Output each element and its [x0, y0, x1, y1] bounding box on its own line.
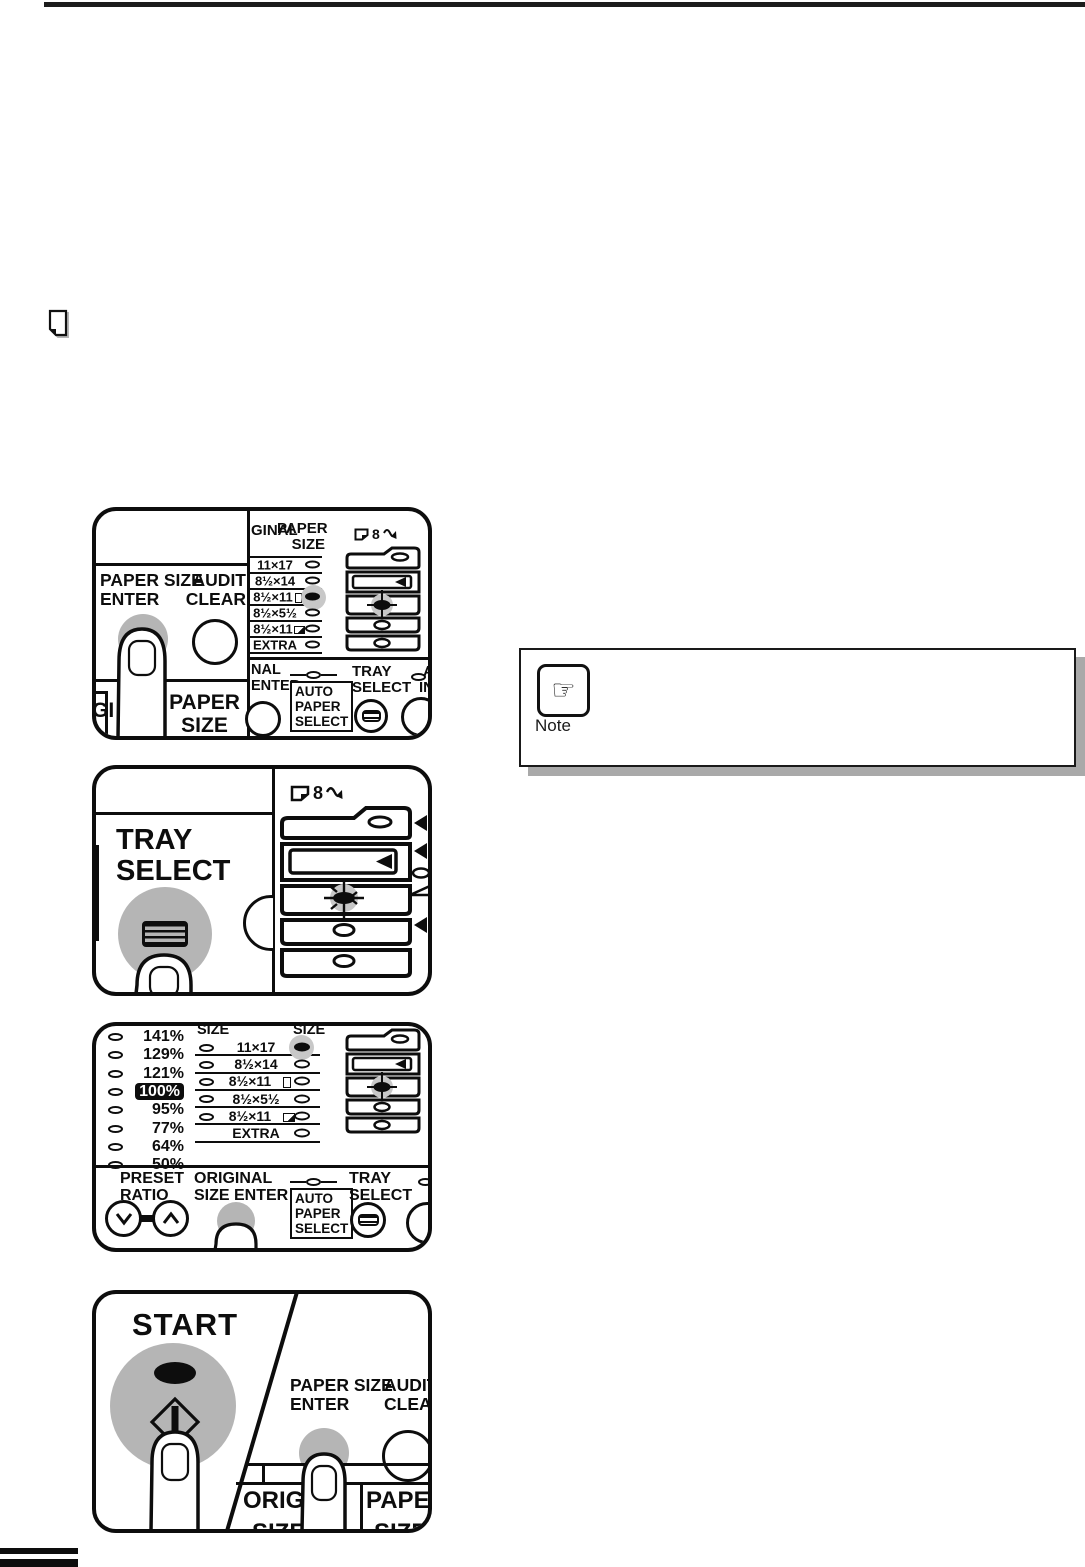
button-partial	[401, 697, 432, 737]
tray-select-label: TRAY SELECT	[116, 825, 230, 888]
panel-tray-select: TRAY SELECT 8	[92, 765, 432, 996]
size-row: 8½×11	[195, 1074, 320, 1091]
divider	[248, 1463, 428, 1466]
original-size-enter-label: ORIGINAL SIZE ENTER	[194, 1170, 288, 1205]
paper-size-enter-label: PAPER SIZE ENTER	[290, 1376, 393, 1414]
size-label: 8½×5½	[217, 1091, 295, 1107]
start-led	[154, 1362, 196, 1384]
cut-label-size: SIZE	[374, 1520, 427, 1533]
led	[108, 1125, 123, 1133]
led	[294, 1111, 310, 1120]
ratio-row: 129%	[108, 1046, 184, 1064]
paper-size-enter-button	[118, 614, 168, 664]
divider	[247, 657, 428, 660]
led	[294, 1077, 310, 1086]
size-label: 8½×11	[247, 590, 299, 605]
misfeed-wave-icon	[383, 528, 397, 541]
button-partial	[243, 895, 273, 951]
footer-mark	[0, 1559, 78, 1567]
size-row: 8½×14	[195, 1056, 320, 1073]
misfeed-wave-icon	[326, 786, 343, 802]
ratio-label: 95%	[132, 1101, 184, 1119]
note-box: ☞ Note	[519, 648, 1076, 767]
size-row: 11×17	[195, 1039, 320, 1056]
paper-size-enter-button	[299, 1428, 349, 1478]
chevron-down-icon	[112, 1206, 136, 1230]
size-row: 11×17	[247, 558, 322, 574]
button-partial-clip	[243, 895, 273, 953]
portrait-page-icon	[283, 1077, 291, 1088]
audit-clear-label: AUDIT CLEAR	[184, 571, 246, 609]
led	[199, 1113, 214, 1121]
selected-ratio-label: 100%	[135, 1083, 184, 1100]
size-label: EXTRA	[247, 638, 303, 653]
size-label: 11×17	[217, 1039, 295, 1055]
divider	[96, 1165, 428, 1168]
panel-original-size-enter: 141% 129% 121% 100% 95% 77% 64% 50% SIZE…	[92, 1022, 432, 1252]
auto-paper-select-led	[306, 671, 321, 679]
size-table: 11×17 8½×14 8½×11 8½×5½	[195, 1039, 320, 1143]
paper-size-list: 11×17 8½×14 8½×11 8½×5½ 8½×11	[247, 556, 322, 654]
landscape-page-icon	[294, 626, 305, 634]
ratio-label: 121%	[132, 1065, 184, 1083]
led	[294, 1129, 310, 1138]
audit-clear-button	[192, 619, 238, 665]
led	[108, 1051, 123, 1059]
size-label: 8½×14	[217, 1056, 295, 1072]
led	[108, 1070, 123, 1078]
size-row: 8½×5½	[247, 606, 322, 622]
auto-paper-select-label: AUTO PAPER SELECT	[290, 1188, 353, 1239]
led-on	[294, 1042, 310, 1051]
ratio-row: 100%	[108, 1083, 184, 1101]
misfeed-number: 8	[372, 526, 380, 542]
size-row: EXTRA	[247, 638, 322, 654]
led	[294, 1094, 310, 1103]
led	[305, 561, 320, 569]
divider	[96, 679, 247, 682]
size-label: EXTRA	[217, 1125, 295, 1141]
led-wire	[321, 1181, 337, 1183]
led-wire	[321, 674, 337, 676]
divider	[360, 1482, 363, 1529]
led	[199, 1078, 214, 1086]
ratio-row: 95%	[108, 1101, 184, 1119]
preset-ratio-label: PRESET RATIO	[120, 1170, 184, 1205]
paper-glyph-icon	[290, 785, 310, 802]
cut-label-paper: PAPER	[366, 1488, 432, 1514]
panel-start: START PAPER SIZE ENTER AUDIT CLEAR ORIGI…	[92, 1290, 432, 1533]
ratio-label: 77%	[132, 1120, 184, 1138]
auto-paper-select-label: AUTO PAPER SELECT	[290, 681, 353, 732]
edge-tick	[96, 845, 99, 941]
cut-label-a: A	[423, 664, 432, 680]
ratio-row: 77%	[108, 1119, 184, 1137]
copier-diagram	[344, 546, 428, 654]
size-label: 8½×14	[247, 574, 303, 589]
auto-paper-select-led	[306, 1178, 321, 1186]
size-label: 8½×11	[213, 1073, 287, 1089]
led	[199, 1061, 214, 1069]
paper-size-column-header: PAPER SIZE	[277, 521, 325, 553]
size-label: 8½×5½	[247, 606, 303, 621]
page-corner-icon	[46, 309, 72, 341]
button-partial	[406, 1202, 432, 1244]
size-label: 8½×11	[213, 1108, 287, 1124]
note-hand-icon: ☞	[537, 664, 590, 717]
led-on	[305, 593, 320, 601]
tray-select-label: TRAY SELECT	[349, 1170, 412, 1205]
led	[305, 625, 320, 633]
footer-mark	[0, 1548, 78, 1554]
led-wire	[290, 674, 306, 676]
ratio-row-selected: 100%	[132, 1083, 184, 1101]
ratio-label: 141%	[132, 1028, 184, 1046]
original-size-column-header: SIZE	[197, 1023, 229, 1039]
led	[108, 1106, 123, 1114]
cut-label-gi: GI	[92, 700, 114, 723]
size-row: 8½×11	[247, 590, 322, 606]
ratio-row: 141%	[108, 1028, 184, 1046]
led	[418, 1178, 432, 1186]
led	[108, 1143, 123, 1151]
tray-icon	[358, 1214, 379, 1226]
size-label: 11×17	[247, 558, 303, 573]
panel-divider	[272, 769, 275, 992]
ratio-row: 64%	[108, 1138, 184, 1156]
led	[108, 1088, 123, 1096]
led	[108, 1033, 123, 1041]
cut-label-size: SIZE	[252, 1520, 305, 1533]
led	[305, 641, 320, 649]
preset-ratio-list: 141% 129% 121% 100% 95% 77% 64% 50%	[108, 1028, 184, 1174]
misfeed-indicator-icon: 8	[290, 783, 343, 804]
ratio-row: 121%	[108, 1065, 184, 1083]
copier-diagram	[344, 1026, 428, 1138]
pointing-hand-glyph: ☞	[551, 677, 575, 704]
size-row: 8½×5½	[195, 1091, 320, 1108]
size-row: 8½×11	[195, 1108, 320, 1125]
original-size-enter-button	[217, 1202, 255, 1240]
divider	[96, 812, 272, 815]
audit-clear-label: AUDIT CLEAR	[384, 1376, 432, 1414]
cut-label-origi: ORIGI	[243, 1488, 311, 1514]
cut-label-in: IN	[419, 680, 432, 696]
led	[305, 609, 320, 617]
note-caption: Note	[535, 716, 571, 736]
chevron-up-icon	[159, 1206, 183, 1230]
misfeed-indicator-icon: 8	[354, 526, 397, 542]
tray-icon	[142, 921, 188, 947]
led	[199, 1095, 214, 1103]
divider	[236, 1482, 428, 1485]
start-label: START	[132, 1308, 238, 1341]
size-label: 8½×11	[247, 622, 299, 637]
cut-label-paper-size: PAPER SIZE	[162, 691, 247, 737]
audit-clear-button	[382, 1430, 432, 1482]
copier-diagram	[278, 805, 430, 987]
led	[199, 1044, 214, 1052]
top-rule	[44, 2, 1085, 7]
divider	[96, 563, 247, 566]
led	[294, 1059, 310, 1068]
ratio-label: 129%	[132, 1046, 184, 1064]
size-row: EXTRA	[195, 1125, 320, 1142]
ratio-label: 64%	[132, 1138, 184, 1156]
original-size-enter-button	[245, 701, 281, 737]
manual-page: PAPER SIZE ENTER AUDIT CLEAR GI PAPER SI…	[0, 0, 1085, 1567]
led	[305, 577, 320, 585]
divider	[262, 1463, 265, 1482]
misfeed-number: 8	[313, 783, 323, 804]
panel-paper-size-enter: PAPER SIZE ENTER AUDIT CLEAR GI PAPER SI…	[92, 507, 432, 740]
paper-glyph-icon	[354, 528, 369, 541]
tray-icon	[362, 710, 381, 722]
tray-select-label: TRAY SELECT	[352, 664, 411, 696]
size-row: 8½×11	[247, 622, 322, 638]
led-wire	[290, 1181, 306, 1183]
